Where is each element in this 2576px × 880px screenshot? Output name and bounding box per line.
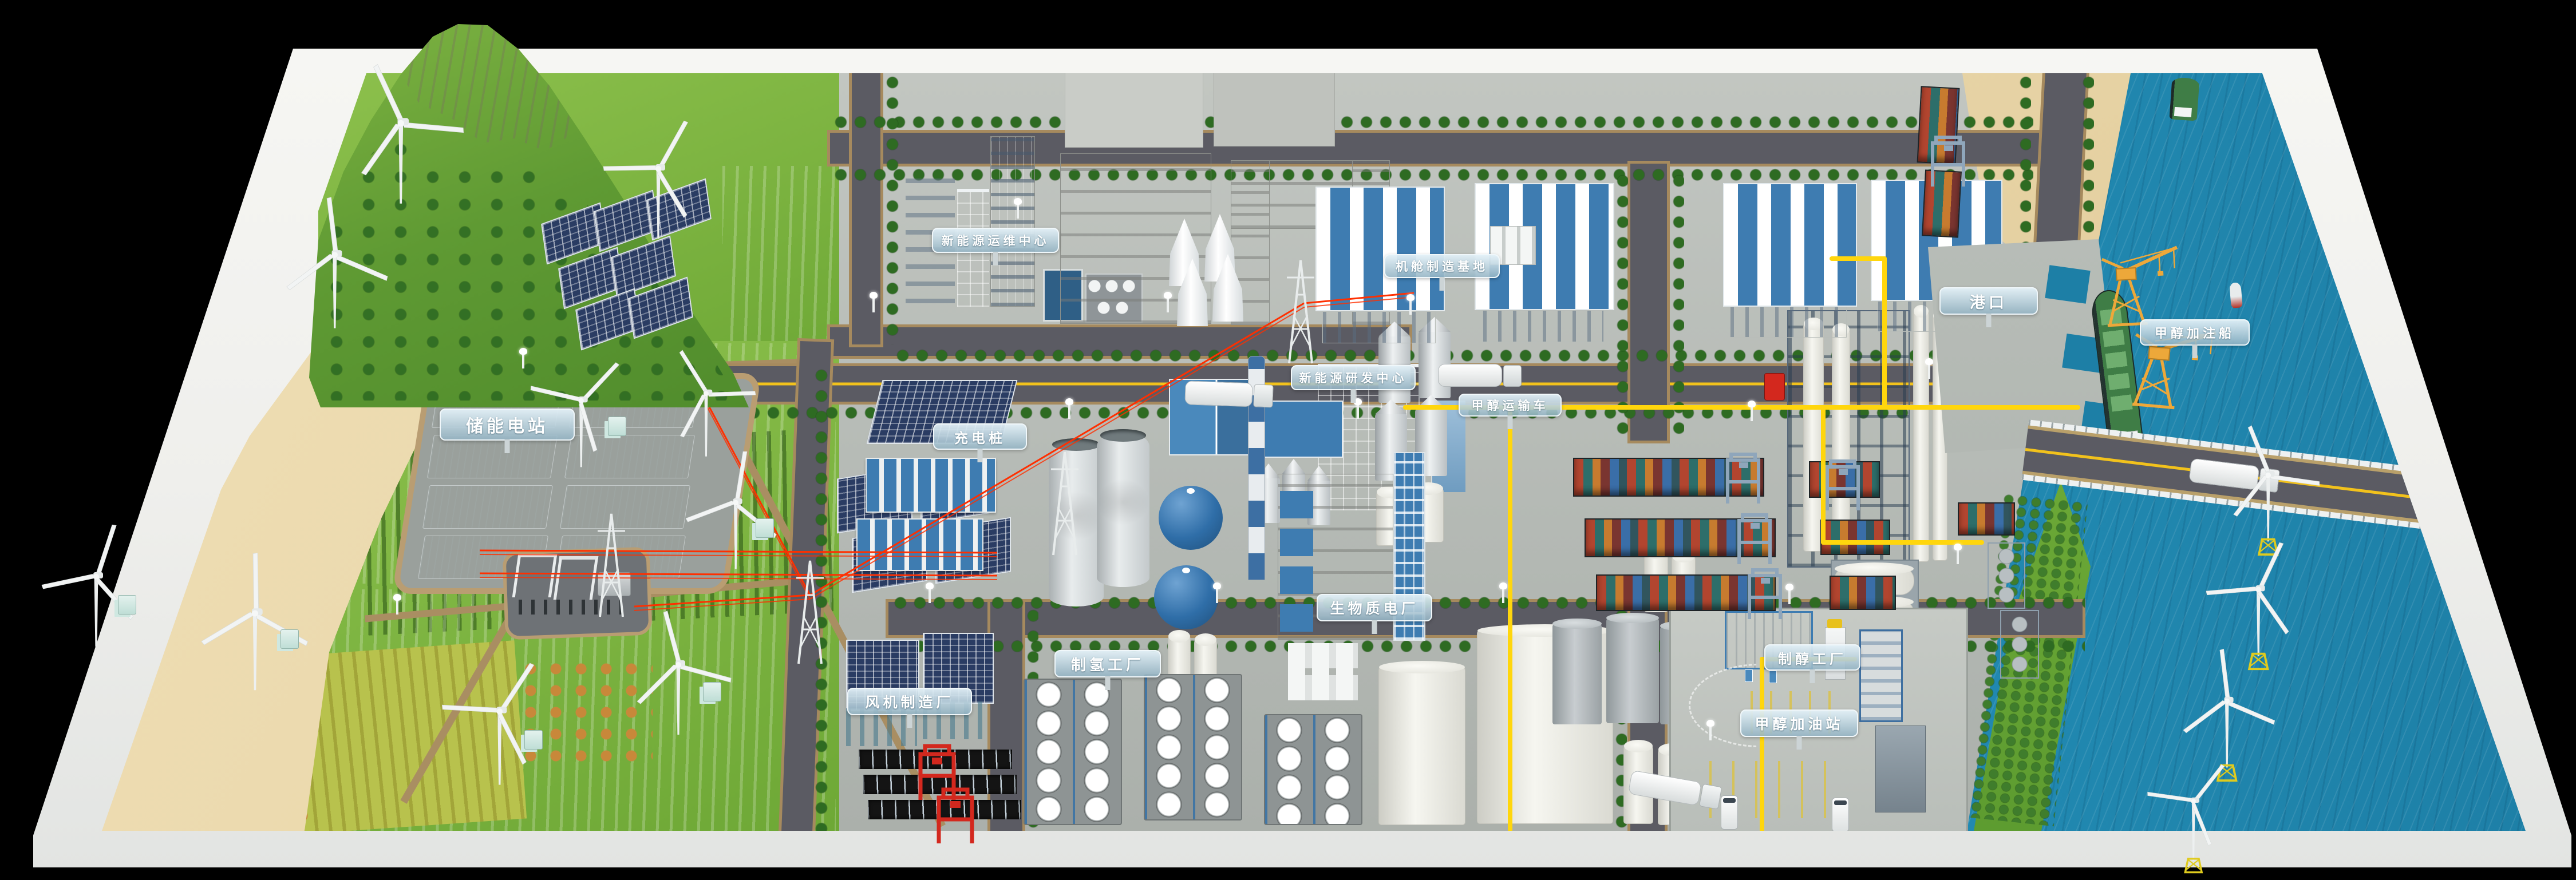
sign-methanol-bunkering-ship[interactable]: 甲醇加注船 — [2140, 319, 2250, 346]
sign-label: 充电桩 — [954, 427, 1006, 447]
sign-label: 机舱制造基地 — [1396, 257, 1488, 275]
sign-charging-piles[interactable]: 充电桩 — [933, 423, 1027, 450]
sign-label: 港口 — [1970, 290, 2008, 312]
sign-methanol-transport-trucks[interactable]: 甲醇运输车 — [1459, 394, 1562, 417]
sign-hydrogen-production-plant[interactable]: 制氢工厂 — [1054, 650, 1161, 677]
sign-port[interactable]: 港口 — [1939, 287, 2038, 315]
sign-label: 生物质电厂 — [1330, 597, 1419, 618]
sign-new-energy-om-center[interactable]: 新能源运维中心 — [932, 228, 1059, 253]
sign-label: 新能源研发中心 — [1299, 369, 1408, 386]
sign-label: 制氢工厂 — [1071, 653, 1144, 675]
sign-nacelle-manufacturing-base[interactable]: 机舱制造基地 — [1384, 254, 1500, 278]
sign-new-energy-rd-center[interactable]: 新能源研发中心 — [1291, 365, 1416, 390]
industrial-park-3d-scene: 储能电站新能源运维中心充电桩新能源研发中心机舱制造基地甲醇运输车生物质电厂制氢工… — [0, 0, 2576, 880]
sign-wind-turbine-factory[interactable]: 风机制造厂 — [847, 688, 972, 715]
facility-signs-layer: 储能电站新能源运维中心充电桩新能源研发中心机舱制造基地甲醇运输车生物质电厂制氢工… — [0, 0, 2576, 880]
sign-label: 甲醇加油站 — [1755, 713, 1843, 734]
sign-energy-storage-station[interactable]: 储能电站 — [440, 409, 575, 441]
sign-biomass-power-plant[interactable]: 生物质电厂 — [1317, 594, 1432, 621]
sign-label: 制醇工厂 — [1778, 648, 1847, 668]
sign-methanol-fueling-station[interactable]: 甲醇加油站 — [1740, 709, 1858, 737]
sign-label: 甲醇运输车 — [1472, 397, 1549, 414]
sign-label: 甲醇加注船 — [2155, 323, 2235, 342]
sign-label: 新能源运维中心 — [942, 232, 1050, 249]
sign-label: 风机制造厂 — [865, 691, 954, 712]
sign-label: 储能电站 — [466, 412, 548, 437]
sign-methanol-synthesis-plant[interactable]: 制醇工厂 — [1764, 644, 1860, 671]
